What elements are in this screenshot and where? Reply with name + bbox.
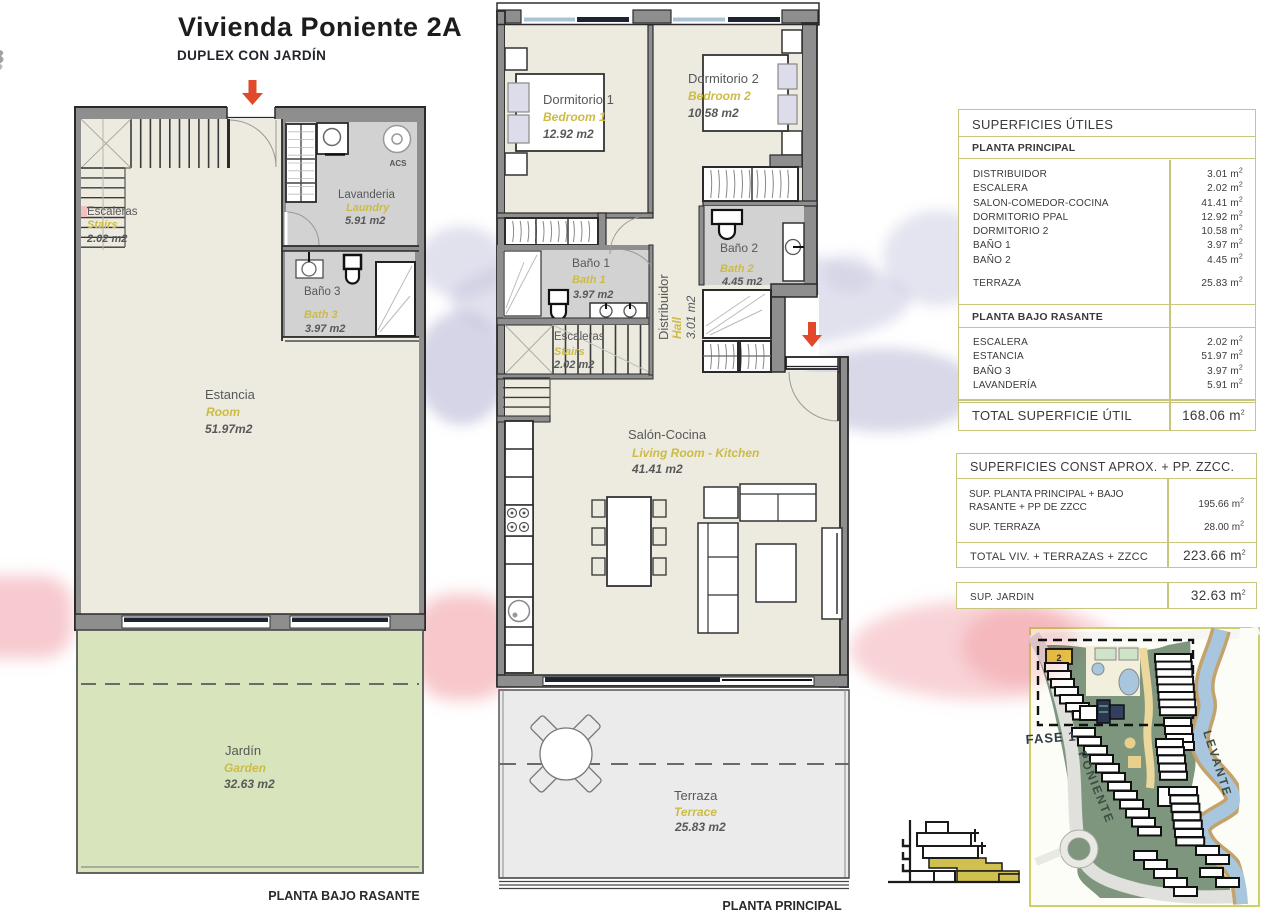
svg-text:51.97m2: 51.97m2 bbox=[205, 422, 253, 436]
svg-text:Baño 2: Baño 2 bbox=[720, 241, 758, 255]
svg-text:Baño 1: Baño 1 bbox=[572, 256, 610, 270]
svg-text:Lavanderia: Lavanderia bbox=[338, 189, 396, 201]
svg-text:Laundry: Laundry bbox=[346, 202, 390, 214]
svg-text:32.63 m2: 32.63 m2 bbox=[224, 777, 275, 791]
svg-text:Living Room - Kitchen: Living Room - Kitchen bbox=[632, 446, 759, 460]
svg-text:Terrace: Terrace bbox=[674, 805, 717, 819]
svg-text:Bath 1: Bath 1 bbox=[572, 274, 606, 286]
svg-text:12.92 m2: 12.92 m2 bbox=[543, 127, 594, 141]
svg-text:Dormitorio 1: Dormitorio 1 bbox=[543, 92, 614, 107]
svg-text:Escaleras: Escaleras bbox=[87, 206, 138, 218]
svg-text:Salón-Cocina: Salón-Cocina bbox=[628, 427, 707, 442]
svg-text:Escaleras: Escaleras bbox=[554, 331, 605, 343]
svg-text:Terraza: Terraza bbox=[674, 788, 718, 803]
svg-text:Stairs: Stairs bbox=[87, 219, 118, 231]
svg-text:PLANTA PRINCIPAL: PLANTA PRINCIPAL bbox=[722, 899, 842, 913]
svg-text:Dormitorio 2: Dormitorio 2 bbox=[688, 71, 759, 86]
svg-text:5.91 m2: 5.91 m2 bbox=[345, 215, 385, 227]
svg-text:Jardín: Jardín bbox=[225, 743, 261, 758]
svg-text:ACS: ACS bbox=[390, 159, 408, 168]
svg-text:2.02 m2: 2.02 m2 bbox=[553, 359, 594, 371]
svg-text:4.45 m2: 4.45 m2 bbox=[721, 276, 762, 288]
svg-text:3.97 m2: 3.97 m2 bbox=[573, 289, 613, 301]
svg-text:10.58 m2: 10.58 m2 bbox=[688, 106, 739, 120]
svg-text:Estancia: Estancia bbox=[205, 387, 256, 402]
svg-text:PLANTA BAJO RASANTE: PLANTA BAJO RASANTE bbox=[268, 889, 419, 903]
svg-text:Garden: Garden bbox=[224, 761, 266, 775]
svg-text:2.02 m2: 2.02 m2 bbox=[86, 233, 127, 245]
svg-text:41.41 m2: 41.41 m2 bbox=[631, 462, 683, 476]
svg-text:Hall: Hall bbox=[670, 316, 684, 339]
svg-text:Room: Room bbox=[206, 405, 240, 419]
svg-text:3.97 m2: 3.97 m2 bbox=[305, 323, 345, 335]
svg-text:Bath 3: Bath 3 bbox=[304, 309, 338, 321]
svg-text:Bedroom 2: Bedroom 2 bbox=[688, 89, 751, 103]
svg-text:25.83 m2: 25.83 m2 bbox=[674, 820, 726, 834]
svg-text:Bath 2: Bath 2 bbox=[720, 263, 754, 275]
svg-text:Distribuidor: Distribuidor bbox=[656, 274, 671, 340]
svg-text:Stairs: Stairs bbox=[554, 346, 585, 358]
svg-text:Baño 3: Baño 3 bbox=[304, 286, 340, 298]
svg-text:Bedroom 1: Bedroom 1 bbox=[543, 110, 606, 124]
svg-text:3.01 m2: 3.01 m2 bbox=[684, 295, 698, 339]
